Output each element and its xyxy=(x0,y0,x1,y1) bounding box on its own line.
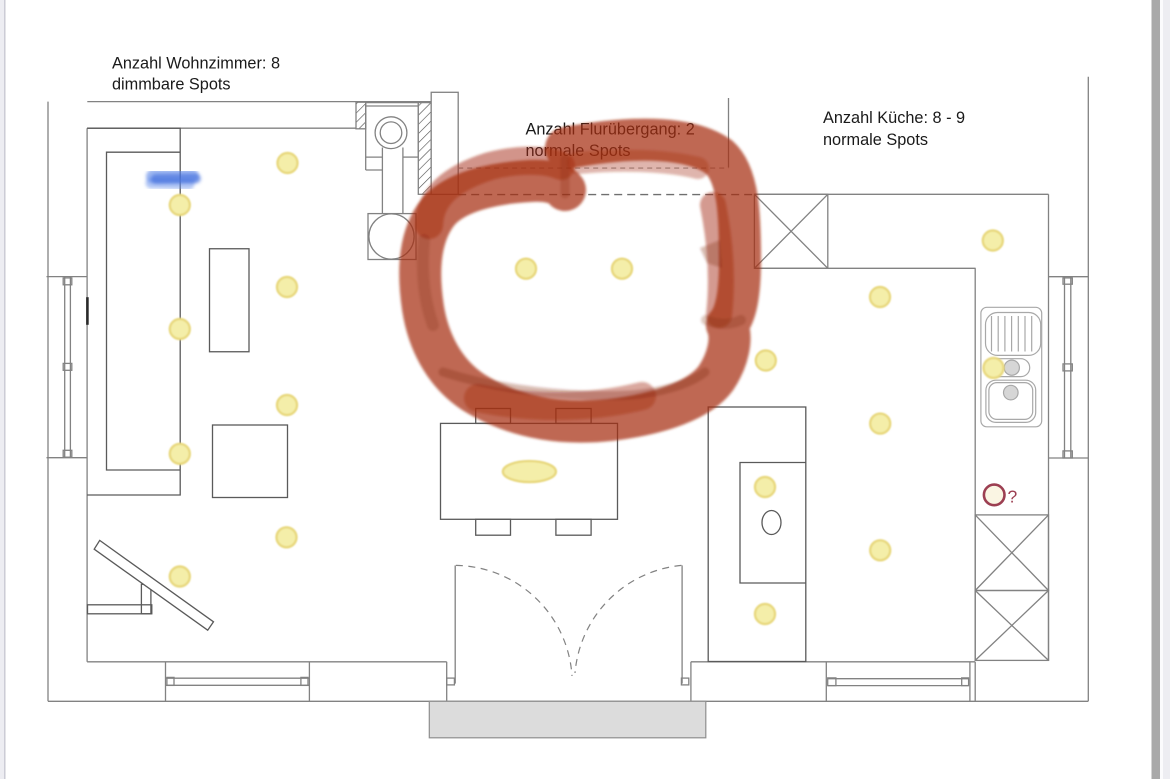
svg-text:Anzahl Küche: 8 - 9: Anzahl Küche: 8 - 9 xyxy=(823,109,965,127)
svg-text:Anzahl Wohnzimmer: 8: Anzahl Wohnzimmer: 8 xyxy=(112,55,280,73)
svg-text:dimmbare Spots: dimmbare Spots xyxy=(112,76,231,94)
svg-text:normale Spots: normale Spots xyxy=(823,131,928,149)
svg-text:?: ? xyxy=(1008,487,1018,507)
